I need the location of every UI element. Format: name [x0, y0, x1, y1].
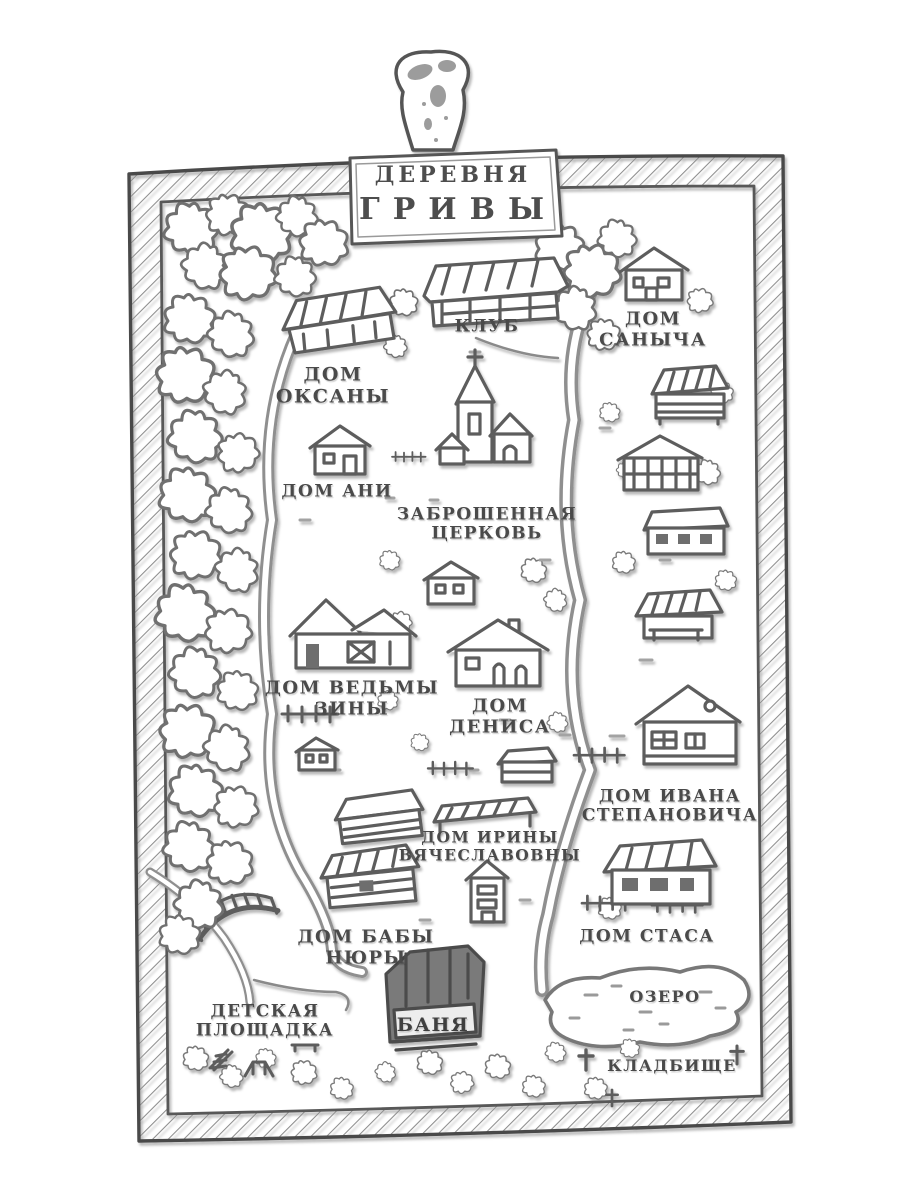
map-title-line1: ДЕРЕВНЯ — [349, 162, 557, 188]
label-club: КЛУБ — [455, 317, 520, 336]
label-nyura-house: ДОМ БАБЫНЮРЫ — [298, 927, 435, 968]
map-title-line2: ГРИВЫ — [349, 192, 557, 227]
small-barn-mid — [498, 748, 556, 782]
label-oksana-house: ДОМОКСАНЫ — [276, 364, 390, 407]
barn-right-1 — [652, 366, 728, 424]
village-map: ДЕРЕВНЯ ГРИВЫ КЛУБ ДОМСАНЫЧА ДОМОКСАНЫ Д… — [0, 0, 900, 1200]
barn-right-3 — [644, 508, 728, 554]
label-irina-house: ДОМ ИРИНЫВЯЧЕСЛАВОВНЫ — [399, 828, 581, 863]
map-title: ДЕРЕВНЯ ГРИВЫ — [349, 162, 557, 227]
barn-right-4 — [636, 590, 722, 640]
sanych-house — [620, 248, 688, 300]
label-ani-house: ДОМ АНИ — [281, 482, 392, 501]
label-ivan-house: ДОМ ИВАНАСТЕПАНОВИЧА — [582, 788, 758, 827]
label-abandoned-church: ЗАБРОШЕННАЯЦЕРКОВЬ — [397, 506, 577, 545]
label-stas-house: ДОМ СТАСА — [579, 927, 715, 946]
zina-house — [290, 600, 416, 668]
label-denis-house: ДОМДЕНИСА — [449, 696, 551, 737]
ani-house — [310, 426, 370, 474]
label-zina-house: ДОМ ВЕДЬМЫЗИНЫ — [265, 678, 439, 719]
stas-house — [604, 840, 716, 904]
label-sanych-house: ДОМСАНЫЧА — [599, 309, 707, 350]
label-playground: ДЕТСКАЯПЛОЩАДКА — [196, 1003, 334, 1042]
label-cemetery: КЛАДБИЩЕ — [607, 1057, 737, 1075]
lake-shape — [545, 967, 749, 1047]
irina-house — [466, 861, 508, 922]
house-right-2 — [618, 436, 702, 490]
mid-small-house — [424, 562, 478, 604]
ivan-house — [636, 686, 740, 764]
binder-clip-icon — [396, 51, 468, 150]
denis-house — [448, 620, 548, 686]
label-lake: ОЗЕРО — [629, 988, 700, 1006]
label-banya: БАНЯ — [397, 1015, 469, 1037]
small-house-left — [296, 738, 338, 770]
road-right — [541, 256, 612, 990]
church-icon — [436, 350, 532, 464]
